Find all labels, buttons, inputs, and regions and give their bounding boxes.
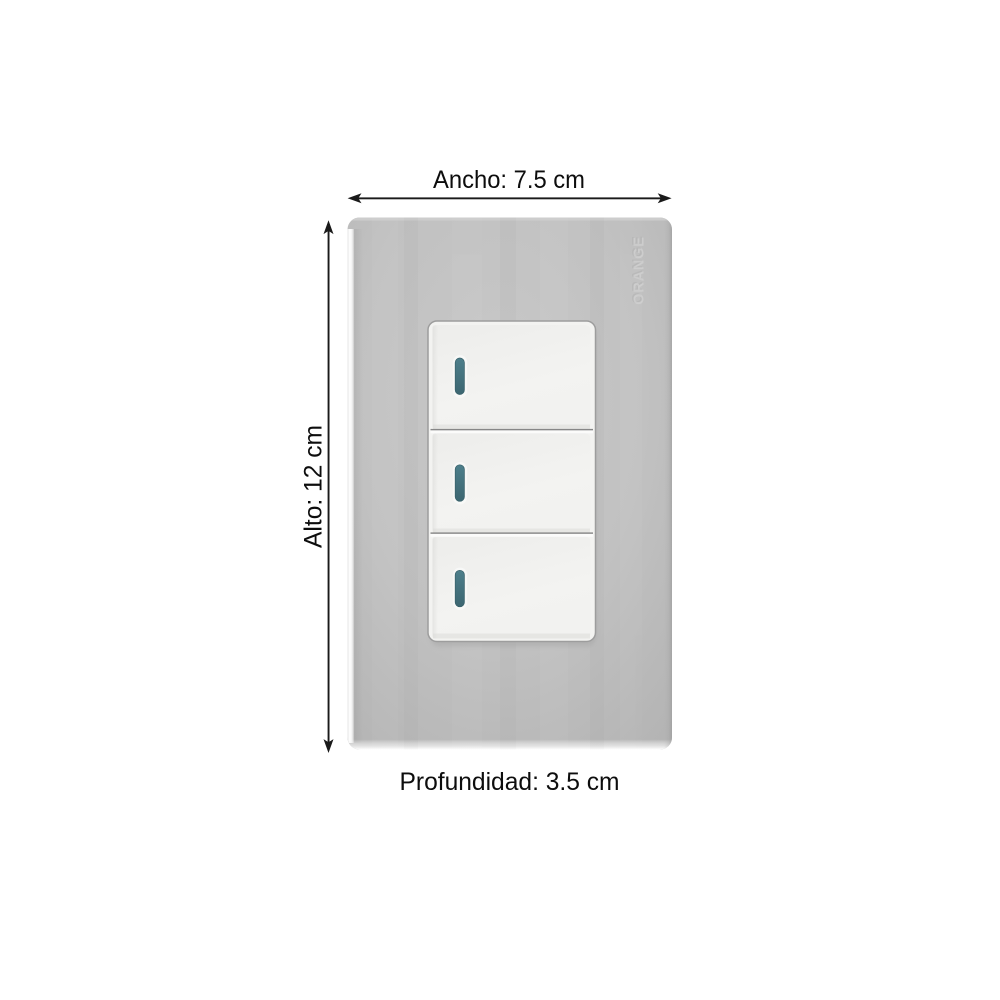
svg-text:ORANGE: ORANGE bbox=[632, 236, 648, 304]
svg-text:Profundidad: 3.5 cm: Profundidad: 3.5 cm bbox=[400, 768, 620, 796]
svg-text:Ancho: 7.5 cm: Ancho: 7.5 cm bbox=[433, 166, 585, 194]
svg-text:Alto: 12 cm: Alto: 12 cm bbox=[300, 425, 328, 548]
